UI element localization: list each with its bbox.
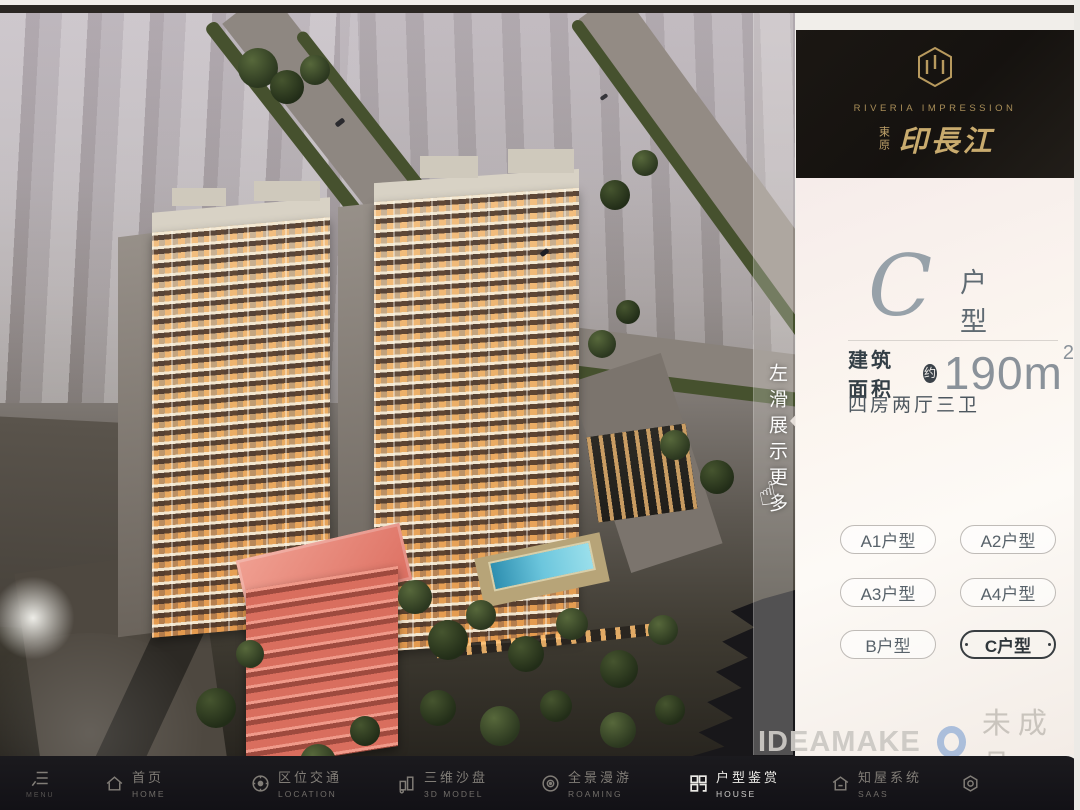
nav-item-menu[interactable]: MENU (26, 756, 55, 810)
tree (660, 430, 690, 460)
tree (540, 690, 572, 722)
tree (616, 300, 640, 324)
tree (648, 615, 678, 645)
tower-left-side (118, 233, 154, 637)
unit-info-panel: C 户型 建筑面积 约 190m 2 四房两厅三卫 A1户型 A2户型 A3户型… (796, 178, 1074, 755)
brand-name-cn-prefix: 東原 (875, 126, 891, 152)
saas-icon (830, 773, 851, 794)
photo-edge (1074, 0, 1080, 810)
nav-item-saas[interactable]: 知屋系统 SAAS (830, 756, 922, 810)
nav-item-settings[interactable] (960, 756, 981, 810)
brand-name-en: RIVERIA IMPRESSION (854, 103, 1017, 114)
unit-button-c-selected[interactable]: C户型 (960, 630, 1056, 659)
panel-divider (848, 340, 1058, 341)
tree (600, 712, 636, 748)
tree (556, 608, 588, 640)
tower-right-parapet (508, 149, 574, 173)
swipe-hint-strip[interactable]: 左滑展示更多 ☝ (753, 13, 793, 755)
3d-model-icon (396, 773, 417, 794)
nav-label-cn: 户型鉴赏 (716, 767, 780, 786)
nav-label-en: HOME (132, 789, 166, 799)
tree (300, 55, 330, 85)
tree (600, 180, 630, 210)
area-exponent: 2 (1063, 342, 1074, 365)
tree (655, 695, 685, 725)
tree (632, 150, 658, 176)
tree (428, 620, 468, 660)
tower-left-parapet (172, 188, 226, 206)
nav-item-roaming[interactable]: 全景漫游 ROAMING (540, 756, 632, 810)
nav-label-en: 3D MODEL (424, 789, 488, 799)
tower-right-parapet (420, 156, 478, 178)
unit-button-a1[interactable]: A1户型 (840, 525, 936, 554)
unit-letter: C (868, 244, 932, 328)
nav-label-en: HOUSE (716, 789, 780, 799)
nav-item-location[interactable]: 区位交通 LOCATION (250, 756, 342, 810)
tree (466, 600, 496, 630)
brand-hexagon-logo-icon (912, 44, 958, 95)
unit-button-a3[interactable]: A3户型 (840, 578, 936, 607)
unit-button-a2[interactable]: A2户型 (960, 525, 1056, 554)
home-icon (104, 773, 125, 794)
nav-label-cn: 三维沙盘 (424, 767, 488, 786)
tree (350, 716, 380, 746)
nav-label-en: MENU (26, 792, 55, 799)
roaming-icon (540, 773, 561, 794)
tree (700, 460, 734, 494)
unit-button-b[interactable]: B户型 (840, 630, 936, 659)
location-icon (250, 773, 271, 794)
brand-name-cn: 印長江 (898, 118, 994, 160)
tree (398, 580, 432, 614)
nav-label-en: SAAS (858, 789, 922, 799)
tree (236, 640, 264, 668)
screen-bezel (0, 5, 1080, 13)
nav-item-3d-model[interactable]: 三维沙盘 3D MODEL (396, 756, 488, 810)
approx-badge: 约 (923, 364, 937, 383)
rooms-text: 四房两厅三卫 (848, 390, 980, 417)
unit-button-a4[interactable]: A4户型 (960, 578, 1056, 607)
tree (480, 706, 520, 746)
nav-label-cn: 知屋系统 (858, 767, 922, 786)
nav-item-home[interactable]: 首页 HOME (104, 756, 166, 810)
tree (508, 636, 544, 672)
nav-label-en: ROAMING (568, 789, 632, 799)
property-rendering (0, 13, 795, 756)
menu-icon (29, 767, 51, 789)
nav-label-en: LOCATION (278, 789, 342, 799)
kiosk-screen: 左滑展示更多 ☝ RIVERIA IMPRESSION 東原 印長江 C 户型 … (0, 0, 1080, 810)
brand-logo-block: RIVERIA IMPRESSION 東原 印長江 (796, 30, 1074, 178)
unit-type-label: 户型 (952, 268, 991, 346)
tree (420, 690, 456, 726)
gear-icon (960, 773, 981, 794)
tower-left-parapet (254, 181, 320, 201)
tree (600, 650, 638, 688)
nav-label-cn: 区位交通 (278, 767, 342, 786)
tree (270, 70, 304, 104)
bottom-nav: MENU 首页 HOME 区位交通 LOCATION (0, 756, 1080, 810)
tree (588, 330, 616, 358)
floorplan-icon (688, 773, 709, 794)
nav-label-cn: 首页 (132, 767, 166, 786)
nav-item-house-active[interactable]: 户型鉴赏 HOUSE (688, 756, 780, 810)
nav-label-cn: 全景漫游 (568, 767, 632, 786)
